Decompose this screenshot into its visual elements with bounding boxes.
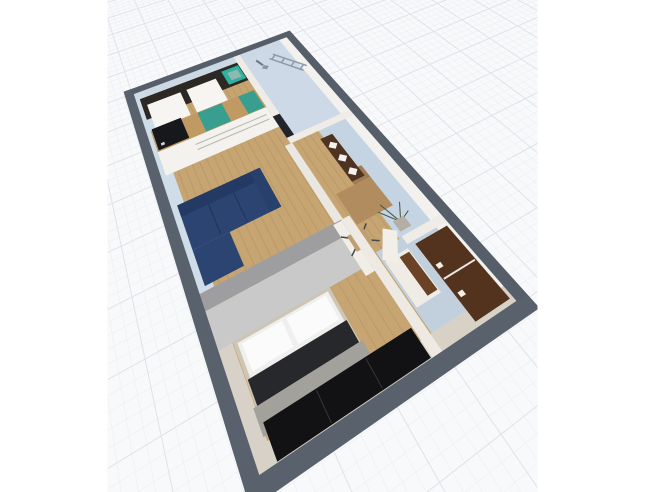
grid-line [14,16,38,492]
grid-line [0,18,8,492]
grid-line [561,0,648,39]
grid-line [0,20,2,492]
grid-line [546,0,648,55]
grid-line [21,14,87,492]
grid-line [575,0,648,24]
grid-line [566,0,648,33]
grid-line [549,0,648,52]
grid-line [541,0,648,62]
grid-line [555,0,648,46]
grid-line [538,0,648,66]
grid-line [535,0,648,69]
grid-line [558,0,648,42]
grid-line [529,0,648,77]
floorplan-3d-canvas[interactable] [0,0,648,492]
grid-line [526,0,648,80]
grid-line [0,18,8,492]
grid-line [561,0,648,39]
entry-cabinet-open-door[interactable] [383,228,399,262]
grid-line [552,0,648,49]
grid-line [546,0,648,55]
grid-line [532,0,648,73]
app-canvas [0,0,648,492]
grid-line [572,0,648,27]
grid-line [543,0,648,59]
grid-line [569,0,648,30]
grid-line [564,0,648,36]
grid-line [520,0,648,88]
grid-line [575,0,648,24]
grid-line [532,0,648,73]
grid-line [523,0,648,84]
